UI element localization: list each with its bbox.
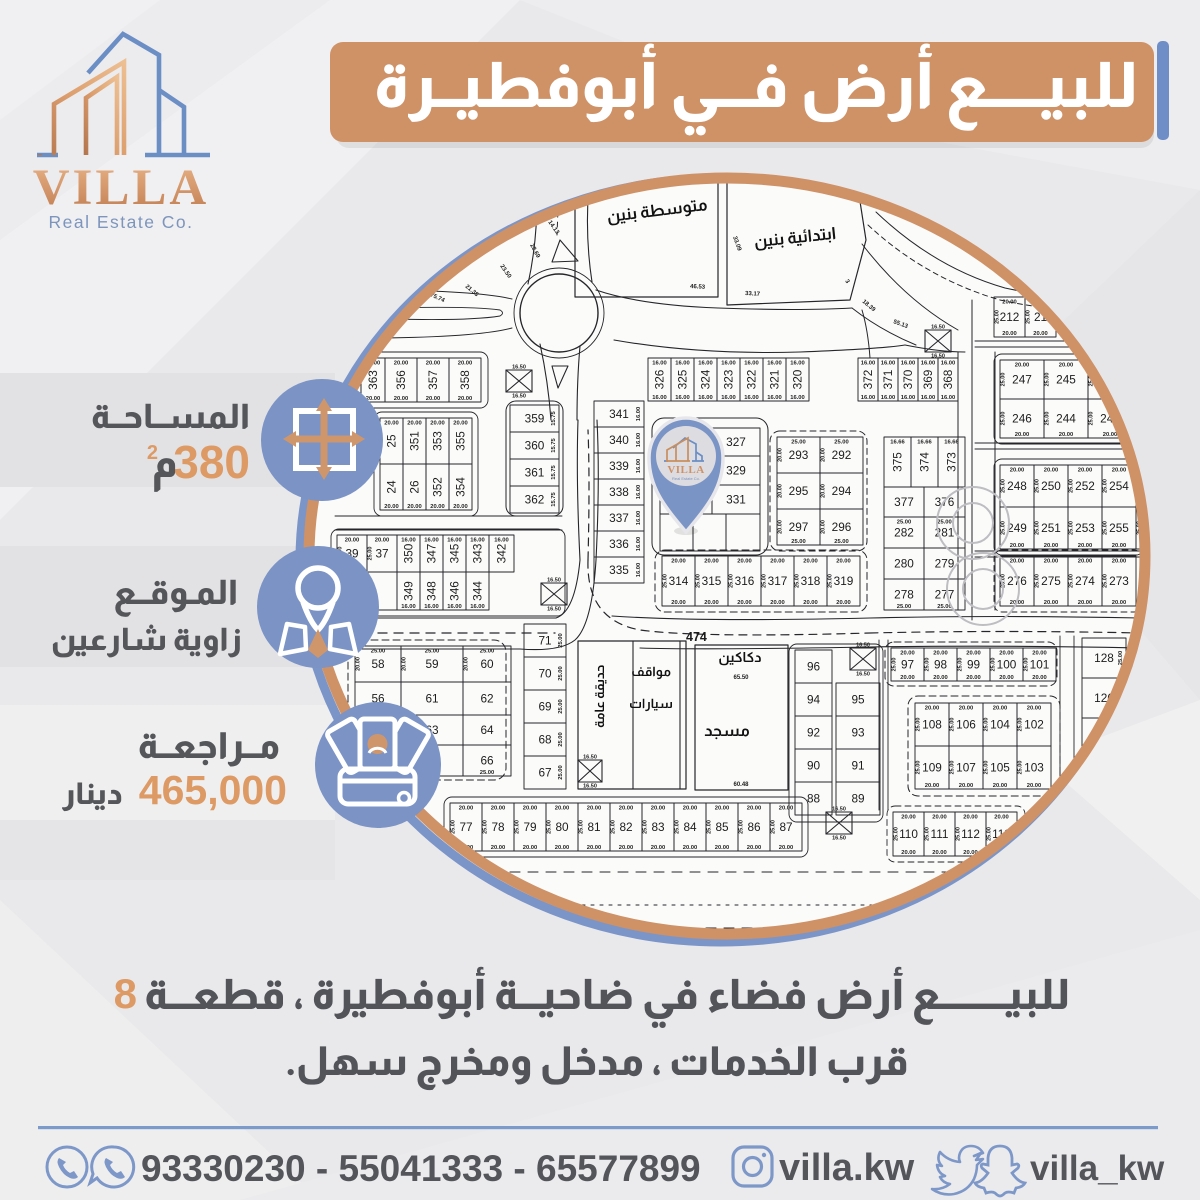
svg-text:20.00: 20.00 [683,806,698,812]
svg-text:83: 83 [651,820,665,834]
svg-text:71: 71 [538,634,551,648]
svg-text:25.00: 25.00 [897,520,912,526]
svg-text:20.00: 20.00 [999,651,1014,657]
svg-text:16.00: 16.00 [921,361,936,367]
svg-text:25.00: 25.00 [558,765,564,780]
svg-text:93330230 - 55041333 - 65577899: 93330230 - 55041333 - 65577899 [141,1148,701,1189]
svg-text:24: 24 [385,480,399,494]
svg-text:2: 2 [147,442,158,464]
svg-text:20.00: 20.00 [901,850,916,856]
svg-text:314: 314 [669,574,689,588]
svg-text:20.00: 20.00 [1027,706,1042,712]
svg-text:296: 296 [832,520,852,534]
svg-text:465,000: 465,000 [139,767,287,813]
svg-text:274: 274 [1075,574,1095,588]
svg-text:78: 78 [491,820,505,834]
svg-text:25.00: 25.00 [558,633,564,648]
svg-text:369: 369 [921,370,935,390]
svg-text:16.00: 16.00 [447,538,462,544]
svg-text:20.00: 20.00 [555,806,570,812]
svg-text:293: 293 [789,448,809,462]
svg-text:16.50: 16.50 [856,643,870,649]
svg-text:25.00: 25.00 [1069,574,1075,588]
svg-text:16.50: 16.50 [583,755,597,761]
svg-text:20.00: 20.00 [459,806,474,812]
svg-text:69: 69 [538,700,551,714]
svg-text:80: 80 [555,820,569,834]
svg-text:65.50: 65.50 [733,675,749,681]
svg-text:247: 247 [1012,373,1032,387]
svg-text:110: 110 [899,827,918,841]
svg-text:16.00: 16.00 [861,395,876,401]
svg-text:25.00: 25.00 [1026,310,1032,324]
svg-text:321: 321 [768,370,782,390]
svg-text:20.00: 20.00 [1059,363,1074,369]
svg-text:25.00: 25.00 [663,574,669,588]
svg-text:25.00: 25.00 [1089,412,1095,426]
svg-text:84: 84 [683,820,697,834]
svg-text:329: 329 [726,464,746,478]
svg-text:20.00: 20.00 [453,504,468,510]
svg-text:25.00: 25.00 [925,658,931,672]
svg-text:20.00: 20.00 [1044,468,1059,474]
svg-text:20.00: 20.00 [1010,559,1025,565]
svg-text:356: 356 [394,370,408,390]
svg-text:25.00: 25.00 [795,574,801,588]
svg-text:25.00: 25.00 [950,761,956,775]
svg-text:20.00: 20.00 [1044,600,1059,606]
svg-text:255: 255 [1109,521,1129,535]
svg-text:20.00: 20.00 [1010,543,1025,549]
svg-text:15.75: 15.75 [551,464,557,479]
svg-text:16.00: 16.00 [790,361,805,367]
svg-text:59: 59 [425,657,438,671]
svg-text:25.00: 25.00 [1045,373,1051,387]
svg-text:16.00: 16.00 [401,538,416,544]
svg-text:16.00: 16.00 [636,407,642,422]
svg-text:VILLA: VILLA [33,160,210,216]
svg-text:20.00: 20.00 [993,706,1008,712]
svg-text:20.00: 20.00 [999,675,1014,681]
svg-text:331: 331 [726,493,746,507]
svg-text:16.00: 16.00 [881,395,896,401]
svg-text:20.00: 20.00 [1078,468,1093,474]
svg-text:Real Estate Co.: Real Estate Co. [672,476,700,481]
svg-text:20.00: 20.00 [1032,675,1047,681]
svg-text:20.00: 20.00 [394,396,409,402]
svg-text:377: 377 [894,495,914,509]
svg-text:25.00: 25.00 [834,440,849,446]
svg-text:81: 81 [587,820,600,834]
svg-text:345: 345 [448,543,462,563]
svg-text:8: 8 [114,970,137,1017]
svg-text:275: 275 [1041,574,1061,588]
svg-text:340: 340 [609,433,629,447]
svg-text:16.00: 16.00 [721,361,736,367]
svg-text:Real Estate Co.: Real Estate Co. [48,212,193,232]
svg-text:294: 294 [832,484,852,498]
svg-text:16.50: 16.50 [856,672,870,678]
svg-text:371: 371 [881,370,895,390]
svg-text:25.00: 25.00 [984,718,990,732]
svg-text:16.66: 16.66 [917,440,932,446]
svg-text:82: 82 [619,820,632,834]
svg-text:25.00: 25.00 [1001,479,1007,493]
svg-text:359: 359 [525,412,545,426]
svg-text:70: 70 [538,667,552,681]
svg-text:16.00: 16.00 [470,604,485,610]
svg-text:20.00: 20.00 [464,657,470,671]
svg-text:20.00: 20.00 [1015,363,1030,369]
svg-text:20.00: 20.00 [901,815,916,821]
svg-text:90: 90 [807,759,821,773]
svg-text:25.00: 25.00 [480,649,495,655]
svg-text:315: 315 [702,574,722,588]
svg-text:20.00: 20.00 [1112,600,1127,606]
svg-text:20.00: 20.00 [394,361,409,367]
svg-text:20.00: 20.00 [821,484,827,498]
svg-text:20.00: 20.00 [426,361,441,367]
svg-text:244: 244 [1056,412,1076,426]
svg-text:278: 278 [894,588,914,602]
svg-text:101: 101 [1030,658,1050,672]
svg-text:20.00: 20.00 [491,806,506,812]
svg-text:20.00: 20.00 [491,845,506,851]
svg-text:25.00: 25.00 [1035,479,1041,493]
svg-text:20.00: 20.00 [426,396,441,402]
svg-text:25.00: 25.00 [579,820,585,834]
svg-text:16.50: 16.50 [547,607,561,613]
svg-text:20.00: 20.00 [925,706,940,712]
svg-text:20.00: 20.00 [619,845,634,851]
svg-text:350: 350 [402,543,416,563]
svg-text:20.00: 20.00 [778,520,784,534]
svg-text:20.00: 20.00 [1032,651,1047,657]
svg-text:374: 374 [918,452,932,472]
svg-text:16.00: 16.00 [767,395,782,401]
svg-text:93: 93 [851,726,865,740]
svg-text:20.00: 20.00 [683,845,698,851]
svg-text:20.00: 20.00 [407,421,422,427]
svg-text:20.00: 20.00 [737,600,752,606]
svg-text:86: 86 [747,820,761,834]
svg-text:20.00: 20.00 [402,657,408,671]
svg-text:100: 100 [997,658,1017,672]
svg-text:25.00: 25.00 [558,732,564,747]
svg-text:20.00: 20.00 [384,504,399,510]
svg-text:16.00: 16.00 [652,361,667,367]
svg-text:107: 107 [956,761,976,775]
svg-text:16.00: 16.00 [652,395,667,401]
svg-text:20.00: 20.00 [587,806,602,812]
svg-text:25.00: 25.00 [834,539,849,545]
svg-text:16.50: 16.50 [512,394,526,400]
svg-text:25.00: 25.00 [675,820,681,834]
svg-text:20.00: 20.00 [994,815,1009,821]
svg-text:20.00: 20.00 [523,806,538,812]
svg-text:273: 273 [1109,574,1129,588]
svg-text:295: 295 [789,484,809,498]
svg-text:25.00: 25.00 [1001,373,1007,387]
svg-text:25.00: 25.00 [937,520,952,526]
svg-text:20.00: 20.00 [900,675,915,681]
svg-text:20.00: 20.00 [345,538,360,544]
svg-text:25.00: 25.00 [1069,479,1075,493]
svg-text:342: 342 [495,544,509,564]
svg-text:89: 89 [851,792,864,806]
svg-text:16.00: 16.00 [698,395,713,401]
svg-text:354: 354 [454,477,468,497]
svg-text:361: 361 [525,466,545,480]
svg-text:16.00: 16.00 [636,511,642,526]
svg-text:375: 375 [891,452,905,472]
svg-text:277: 277 [935,588,955,602]
svg-text:349: 349 [402,581,416,601]
svg-text:16.00: 16.00 [636,537,642,552]
svg-text:363: 363 [366,370,380,390]
svg-text:20.00: 20.00 [1010,468,1025,474]
svg-text:25.00: 25.00 [558,699,564,714]
svg-text:20.00: 20.00 [1078,559,1093,565]
svg-text:25.00: 25.00 [950,718,956,732]
svg-text:25.00: 25.00 [771,820,777,834]
svg-text:20.00: 20.00 [651,806,666,812]
svg-text:62: 62 [480,692,493,706]
svg-text:25.00: 25.00 [1103,521,1109,535]
svg-text:25.00: 25.00 [1103,479,1109,493]
svg-text:20.00: 20.00 [993,783,1008,789]
svg-text:25.00: 25.00 [1001,521,1007,535]
svg-text:20.00: 20.00 [779,845,794,851]
svg-text:20.00: 20.00 [778,484,784,498]
svg-text:16.50: 16.50 [512,365,526,371]
svg-text:16.00: 16.00 [494,538,509,544]
svg-text:16.00: 16.00 [921,395,936,401]
svg-text:20.00: 20.00 [836,559,851,565]
svg-text:20.00: 20.00 [821,448,827,462]
svg-text:16.66: 16.66 [890,440,905,446]
svg-text:353: 353 [431,431,445,451]
svg-text:339: 339 [609,459,629,473]
svg-text:16.00: 16.00 [941,395,956,401]
svg-text:20.00: 20.00 [933,651,948,657]
svg-text:352: 352 [431,477,445,497]
svg-text:87: 87 [779,820,792,834]
svg-text:25.00: 25.00 [739,820,745,834]
svg-text:37: 37 [375,547,388,561]
svg-text:25.00: 25.00 [1018,761,1024,775]
svg-text:16.50: 16.50 [583,784,597,790]
svg-text:60: 60 [480,657,494,671]
svg-text:16.00: 16.00 [401,604,416,610]
svg-text:108: 108 [922,718,942,732]
svg-text:341: 341 [609,407,629,421]
svg-text:25.00: 25.00 [1103,574,1109,588]
svg-text:20.00: 20.00 [737,559,752,565]
svg-text:98: 98 [934,658,948,672]
svg-text:96: 96 [807,660,821,674]
svg-text:25: 25 [385,434,399,448]
svg-text:335: 335 [609,563,629,577]
svg-text:20.00: 20.00 [1015,432,1030,438]
svg-text:20.00: 20.00 [932,850,947,856]
svg-text:15.75: 15.75 [551,437,557,452]
svg-text:20.00: 20.00 [770,600,785,606]
svg-text:351: 351 [408,431,422,451]
svg-text:20.00: 20.00 [959,706,974,712]
svg-text:253: 253 [1075,521,1095,535]
svg-text:25.00: 25.00 [892,658,898,672]
svg-text:68: 68 [538,733,552,747]
svg-text:20.00: 20.00 [1112,543,1127,549]
svg-text:212: 212 [1000,310,1020,324]
svg-text:20.00: 20.00 [933,675,948,681]
svg-text:20.00: 20.00 [1027,783,1042,789]
svg-text:254: 254 [1109,479,1129,493]
svg-text:20.00: 20.00 [671,559,686,565]
svg-text:20.00: 20.00 [619,806,634,812]
svg-text:97: 97 [901,658,914,672]
svg-text:VILLA: VILLA [667,464,704,476]
svg-text:346: 346 [448,581,462,601]
svg-text:16.00: 16.00 [881,361,896,367]
svg-text:248: 248 [1007,479,1027,493]
svg-text:325: 325 [676,369,690,389]
svg-text:46.53: 46.53 [690,284,706,291]
svg-text:20.00: 20.00 [1078,543,1093,549]
svg-text:103: 103 [1024,761,1044,775]
svg-text:355: 355 [454,431,468,451]
svg-text:20.00: 20.00 [1002,331,1017,337]
svg-text:25.00: 25.00 [791,440,806,446]
svg-text:16.66: 16.66 [944,440,959,446]
svg-text:368: 368 [941,369,955,389]
svg-text:112: 112 [961,827,980,841]
svg-text:25.00: 25.00 [480,770,495,776]
svg-text:20.00: 20.00 [453,421,468,427]
svg-text:336: 336 [609,537,629,551]
svg-text:319: 319 [834,574,854,588]
svg-text:337: 337 [609,511,629,525]
svg-text:25.00: 25.00 [762,574,768,588]
svg-text:372: 372 [861,370,875,390]
svg-text:20.00: 20.00 [715,806,730,812]
svg-text:344: 344 [471,581,485,601]
svg-text:358: 358 [458,370,472,390]
svg-text:128: 128 [1094,651,1114,665]
svg-text:20.00: 20.00 [1078,600,1093,606]
svg-text:16.50: 16.50 [547,578,561,584]
svg-text:20.00: 20.00 [384,421,399,427]
svg-text:20.00: 20.00 [778,448,784,462]
svg-text:20.00: 20.00 [900,651,915,657]
svg-text:25.00: 25.00 [515,820,521,834]
svg-text:33.17: 33.17 [745,291,761,298]
svg-text:95: 95 [851,693,865,707]
svg-text:77: 77 [459,820,472,834]
svg-text:20.00: 20.00 [407,504,422,510]
svg-text:25.00: 25.00 [611,820,617,834]
svg-text:16.00: 16.00 [744,361,759,367]
svg-text:20.00: 20.00 [375,538,390,544]
svg-text:64: 64 [480,723,494,737]
svg-text:16.00: 16.00 [636,485,642,500]
svg-text:102: 102 [1024,718,1044,732]
svg-text:343: 343 [471,543,485,563]
svg-text:16.00: 16.00 [447,604,462,610]
svg-text:25.00: 25.00 [1045,412,1051,426]
svg-text:106: 106 [956,718,976,732]
svg-text:25.00: 25.00 [558,666,564,681]
svg-text:292: 292 [832,448,852,462]
svg-text:245: 245 [1056,373,1076,387]
svg-text:373: 373 [945,452,959,472]
svg-text:61: 61 [425,692,438,706]
svg-text:67: 67 [538,766,551,780]
svg-text:297: 297 [789,520,809,534]
svg-text:88: 88 [807,792,821,806]
svg-text:16.00: 16.00 [744,395,759,401]
svg-text:324: 324 [699,369,713,389]
svg-text:316: 316 [735,574,755,588]
svg-text:60.48: 60.48 [733,782,749,788]
svg-text:85: 85 [715,820,729,834]
svg-text:villa_kw: villa_kw [1030,1149,1165,1188]
svg-text:360: 360 [525,439,545,453]
svg-text:16.00: 16.00 [698,361,713,367]
svg-text:20.00: 20.00 [959,783,974,789]
svg-text:16.00: 16.00 [767,361,782,367]
svg-text:20.00: 20.00 [803,559,818,565]
svg-text:16.50: 16.50 [931,325,945,331]
svg-text:251: 251 [1041,521,1061,535]
svg-text:20.00: 20.00 [523,845,538,851]
svg-text:25.00: 25.00 [984,761,990,775]
svg-text:16.00: 16.00 [901,361,916,367]
svg-text:15.75: 15.75 [551,410,557,425]
svg-text:474: 474 [686,630,707,644]
svg-text:20.00: 20.00 [966,675,981,681]
svg-text:282: 282 [894,526,914,540]
svg-text:16.00: 16.00 [424,538,439,544]
svg-text:16.50: 16.50 [832,807,846,813]
svg-text:20.00: 20.00 [651,845,666,851]
svg-text:66: 66 [480,754,494,768]
svg-text:104: 104 [990,718,1010,732]
svg-text:20.00: 20.00 [1044,559,1059,565]
svg-text:25.00: 25.00 [547,820,553,834]
svg-text:20.00: 20.00 [1112,559,1127,565]
svg-text:16.00: 16.00 [861,361,876,367]
svg-text:16.50: 16.50 [931,354,945,360]
svg-text:25.00: 25.00 [897,604,912,610]
svg-text:16.00: 16.00 [636,459,642,474]
svg-text:109: 109 [922,761,942,775]
svg-text:58: 58 [371,657,385,671]
svg-text:20.00: 20.00 [925,783,940,789]
svg-text:279: 279 [935,557,955,571]
svg-text:20.00: 20.00 [458,361,473,367]
svg-text:25.00: 25.00 [696,574,702,588]
svg-text:20.00: 20.00 [430,421,445,427]
svg-text:327: 327 [726,435,746,449]
svg-text:25.00: 25.00 [991,658,997,672]
svg-text:16.00: 16.00 [901,395,916,401]
svg-text:25.00: 25.00 [483,820,489,834]
svg-text:20.00: 20.00 [770,559,785,565]
svg-text:246: 246 [1012,412,1032,426]
svg-text:25.00: 25.00 [707,820,713,834]
